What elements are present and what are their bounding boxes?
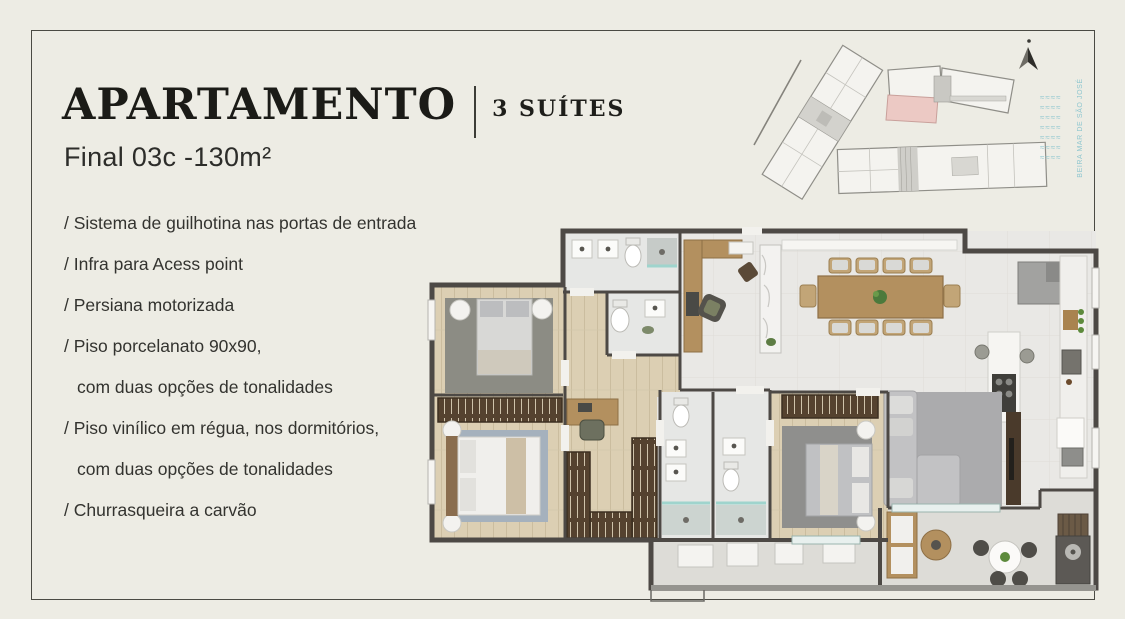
suites-label: 3 SUÍTES (492, 96, 625, 122)
suite-2-nightstand (443, 514, 461, 532)
suite-3 (782, 395, 878, 531)
suite-3-wardrobe (782, 395, 878, 418)
north-arrow-icon (1019, 39, 1038, 70)
feature-list: / Sistema de guilhotina nas portas de en… (64, 203, 464, 531)
marble-sideboard (760, 245, 781, 353)
svg-text:≈≈≈≈: ≈≈≈≈ (1040, 113, 1062, 122)
suite-1-nightstand (532, 299, 552, 319)
suite-2 (443, 421, 548, 532)
feature-item: / Infra para Acess point (64, 244, 464, 285)
sliding-door (892, 504, 1000, 512)
suite-3-bed (806, 444, 872, 516)
svg-text:≈≈≈≈: ≈≈≈≈ (1040, 123, 1062, 132)
unit-label: Final 03c -130m² (64, 142, 271, 173)
sliding-door (792, 536, 860, 544)
suite-1-nightstand (450, 300, 470, 320)
suite-2-bed (446, 436, 540, 516)
stool (1020, 349, 1034, 363)
water-label: BEIRA MAR DE SÃO JOSÉ (1075, 78, 1084, 177)
cutting-board (1063, 310, 1078, 330)
highlighted-unit (886, 95, 938, 123)
grill-counter (1056, 514, 1090, 584)
step-line (651, 590, 704, 601)
feature-item: / Piso vinílico em régua, nos dormitório… (64, 408, 464, 449)
toilet-icon (625, 238, 641, 267)
laptop (686, 292, 699, 316)
desk-chair (580, 420, 604, 440)
page-title: APARTAMENTO (62, 82, 456, 129)
feature-item: / Churrasqueira a carvão (64, 490, 464, 531)
terrace-bench (887, 512, 917, 578)
svg-text:≈≈≈≈: ≈≈≈≈ (1040, 103, 1062, 112)
tv (1009, 438, 1014, 480)
suite-1 (445, 298, 553, 393)
water-waves-icon: ≈≈≈≈ ≈≈≈≈ ≈≈≈≈ ≈≈≈≈ ≈≈≈≈ ≈≈≈≈ ≈≈≈≈ (1040, 93, 1062, 162)
kitchen-sink (1062, 350, 1081, 374)
parapet (651, 585, 1096, 591)
toilet-icon (673, 398, 689, 427)
feature-item: / Persiana motorizada (64, 285, 464, 326)
window-sheer (782, 240, 957, 250)
building-middle (886, 66, 1014, 123)
svg-text:≈≈≈≈: ≈≈≈≈ (1040, 93, 1062, 102)
feature-item-continuation: com duas opções de tonalidades (64, 367, 464, 408)
svg-text:≈≈≈≈: ≈≈≈≈ (1040, 153, 1062, 162)
building-bottom (837, 142, 1046, 193)
feature-item: / Sistema de guilhotina nas portas de en… (64, 203, 464, 244)
svg-text:≈≈≈≈: ≈≈≈≈ (1040, 133, 1062, 142)
living-room (884, 391, 1021, 506)
suite-1-bed (477, 299, 532, 375)
feature-item: / Piso porcelanato 90x90, (64, 326, 464, 367)
suite-3-nightstand (857, 421, 875, 439)
hall-floor-2 (563, 355, 680, 397)
stool (975, 345, 989, 359)
toilet-icon (723, 462, 739, 491)
toilet-icon (611, 300, 629, 332)
site-key-plan: ≈≈≈≈ ≈≈≈≈ ≈≈≈≈ ≈≈≈≈ ≈≈≈≈ ≈≈≈≈ ≈≈≈≈ BEIRA… (738, 28, 1110, 206)
floor-plan (425, 222, 1105, 612)
suite-wardrobe (438, 398, 562, 422)
svg-text:≈≈≈≈: ≈≈≈≈ (1040, 143, 1062, 152)
feature-item-continuation: com duas opções de tonalidades (64, 449, 464, 490)
title-divider (474, 86, 476, 138)
dishwasher (1062, 448, 1083, 466)
header: APARTAMENTO 3 SUÍTES (62, 82, 625, 138)
page: APARTAMENTO 3 SUÍTES Final 03c -130m² / … (0, 0, 1125, 619)
